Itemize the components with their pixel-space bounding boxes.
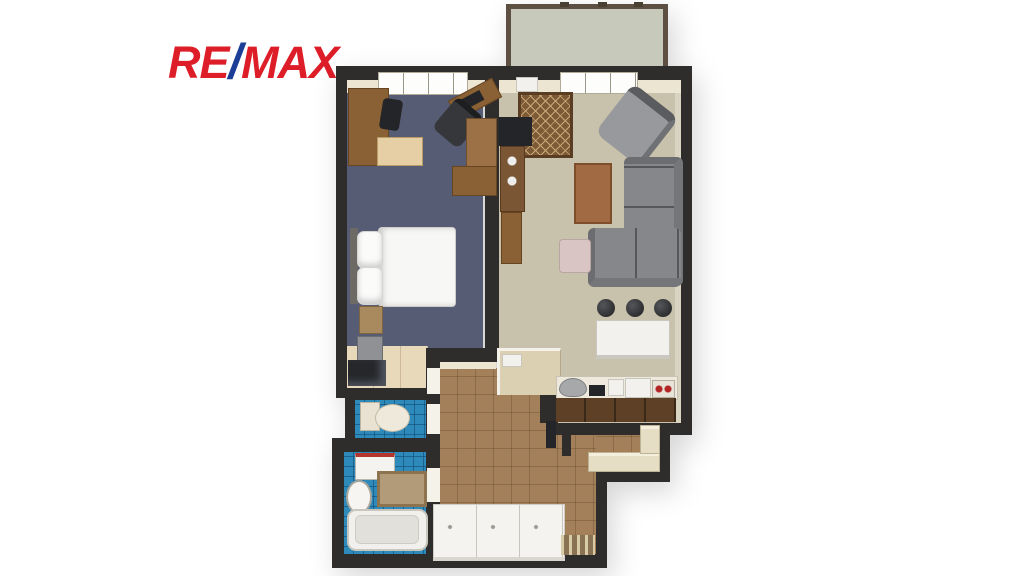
tv-stand (500, 146, 525, 212)
bar-stool (654, 299, 672, 317)
doormat (561, 535, 595, 555)
bar-stool (597, 299, 615, 317)
pillow (357, 231, 383, 269)
bathtub (347, 509, 428, 551)
balcony-railing-post (560, 2, 569, 7)
bathroom-door-opening (427, 468, 440, 502)
floor-plan-image: RE/MAX (0, 0, 1024, 576)
double-bed (378, 227, 456, 307)
wall-bath-left (332, 438, 344, 568)
ottoman (559, 239, 591, 273)
wall-living-bottom (552, 423, 692, 435)
shelf-unit (501, 212, 522, 264)
wall-wc-bath (340, 438, 428, 452)
outer-wall-left (336, 66, 347, 398)
balcony-railing-post (598, 2, 607, 7)
coffee-table (574, 163, 612, 224)
bedroom-door-opening (427, 368, 440, 394)
cooktop (589, 385, 605, 396)
bath-mat (377, 471, 427, 507)
bar-stool (626, 299, 644, 317)
open-door-leaf (546, 421, 556, 448)
wardrobe (433, 504, 565, 561)
wall-hall-right-lower (596, 470, 607, 568)
toilet-bowl (375, 404, 410, 432)
dish-rack (559, 378, 587, 397)
wall-wc-top (345, 388, 428, 400)
kitchen-sink (502, 354, 522, 367)
corner-sofa-seat (588, 228, 681, 287)
floor-plan (0, 0, 1024, 576)
coffee-machine (608, 379, 624, 396)
pillow (357, 267, 383, 305)
entry-wall-stub (562, 423, 571, 456)
vanity (348, 360, 386, 386)
kitchen-cabinet-front (556, 398, 676, 422)
wc-door-opening (427, 404, 440, 434)
bathtub-basin (355, 515, 419, 544)
shelf-unit (466, 118, 497, 170)
bedroom-window (378, 72, 468, 95)
entry-cabinet (640, 425, 660, 454)
balcony-railing-post (634, 2, 643, 7)
dining-table (596, 320, 670, 359)
entry-cabinet (588, 452, 660, 472)
tv (499, 117, 532, 146)
nightstand (359, 306, 383, 334)
kitchen-appliance (625, 378, 651, 398)
stool (357, 336, 383, 362)
sideboard (452, 166, 497, 196)
wall-wc-left (345, 388, 355, 444)
dresser (377, 137, 423, 166)
red-appliance (652, 380, 675, 398)
wall-vent (516, 77, 538, 92)
balcony (506, 4, 668, 74)
